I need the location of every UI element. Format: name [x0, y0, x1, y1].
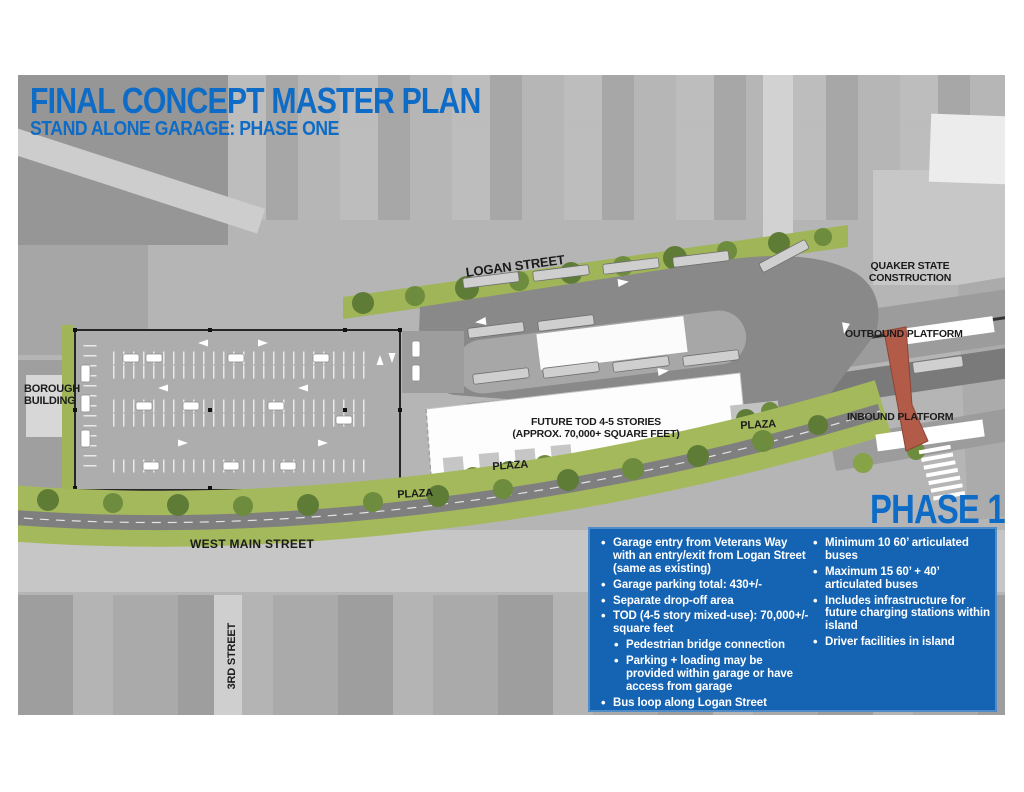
label-west-main-street: WEST MAIN STREET [190, 538, 314, 551]
info-item: Includes infrastructure for future charg… [812, 595, 990, 634]
label-borough-line2: BUILDING [24, 395, 84, 407]
label-tod-line1: FUTURE TOD 4-5 STORIES [511, 417, 681, 429]
info-item: Maximum 15 60’ + 40’ articulated buses [812, 566, 990, 592]
label-inbound-platform: INBOUND PLATFORM [847, 412, 953, 424]
label-plaza-left: PLAZA [397, 487, 433, 501]
label-third-street: 3RD STREET [226, 614, 238, 698]
label-quaker-state: QUAKER STATE CONSTRUCTION [860, 261, 960, 285]
label-tod-building: FUTURE TOD 4-5 STORIES (APPROX. 70,000+ … [511, 417, 681, 441]
label-plaza-right: PLAZA [740, 418, 776, 432]
label-quaker-state-line2: CONSTRUCTION [860, 273, 960, 285]
drop-off-area [402, 331, 464, 393]
label-borough-line1: BOROUGH [24, 383, 84, 395]
info-column-right: Minimum 10 60’ articulated buses Maximum… [812, 537, 990, 706]
info-item: Garage entry from Veterans Way with an e… [600, 537, 812, 576]
page-subtitle: STAND ALONE GARAGE: PHASE ONE [30, 118, 339, 141]
info-item: Bus loop along Logan Street [600, 697, 812, 710]
info-item: Minimum 10 60’ articulated buses [812, 537, 990, 563]
label-outbound-platform: OUTBOUND PLATFORM [845, 329, 963, 341]
phase-label: PHASE 1 [870, 486, 1005, 533]
label-tod-line2: (APPROX. 70,000+ SQUARE FEET) [511, 429, 681, 441]
info-column-left: Garage entry from Veterans Way with an e… [600, 537, 812, 706]
parking-garage [62, 325, 402, 497]
label-quaker-state-line1: QUAKER STATE [860, 261, 960, 273]
info-subitem: Pedestrian bridge connection [613, 639, 812, 652]
phase-info-panel: Garage entry from Veterans Way with an e… [588, 527, 997, 712]
info-item: Separate drop-off area [600, 595, 812, 608]
info-item: Driver facilities in island [812, 636, 990, 649]
label-borough-building: BOROUGH BUILDING [24, 383, 84, 408]
page-title: FINAL CONCEPT MASTER PLAN [30, 80, 481, 122]
info-subitem: Parking + loading may be provided within… [613, 655, 812, 694]
label-plaza-mid: PLAZA [492, 459, 528, 474]
info-item: TOD (4-5 story mixed-use): 70,000+/- squ… [600, 610, 812, 636]
info-item: Garage parking total: 430+/- [600, 579, 812, 592]
